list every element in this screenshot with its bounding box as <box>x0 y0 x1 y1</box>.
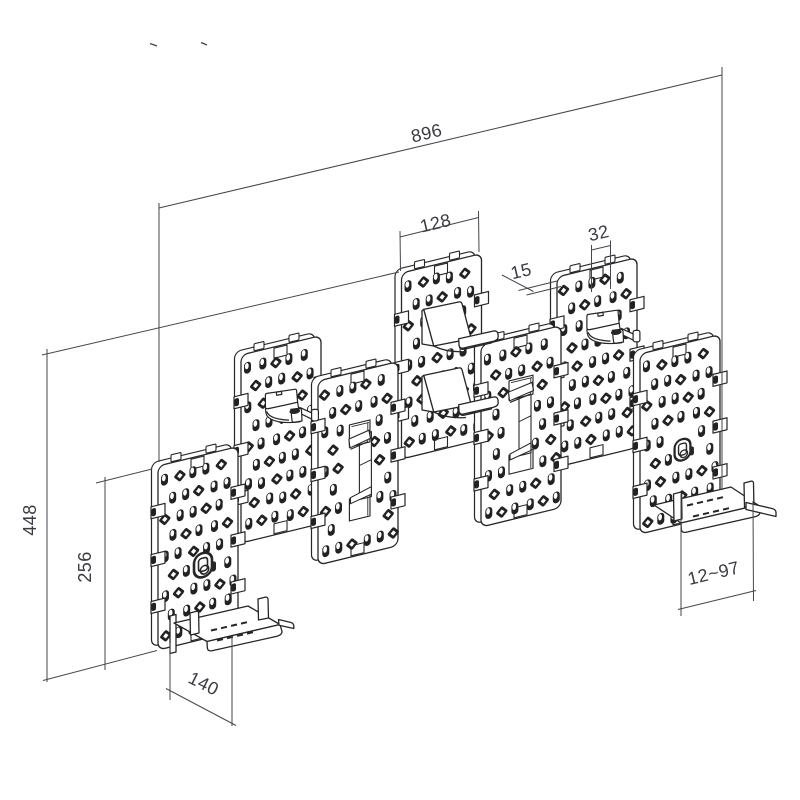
svg-text:448: 448 <box>20 504 40 535</box>
svg-text:256: 256 <box>75 551 95 582</box>
